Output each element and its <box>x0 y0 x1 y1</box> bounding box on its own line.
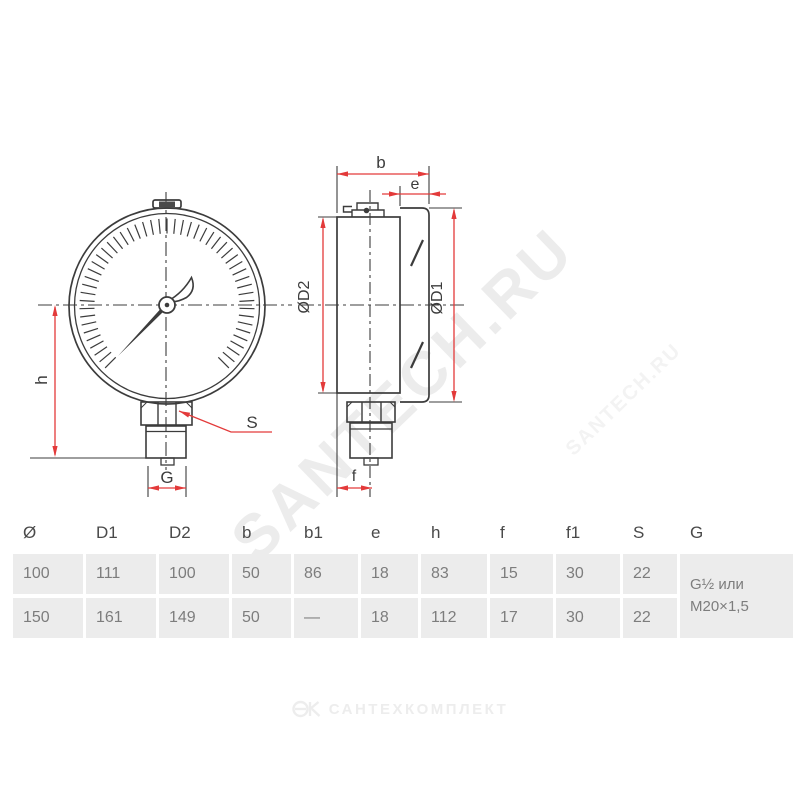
thread-value-line1: G½ или <box>690 576 744 593</box>
hex-nut-faces <box>158 402 176 425</box>
page: SANTECH.RU SANTECH.RU <box>0 0 800 800</box>
table-row: 150 161 149 50 — 18 112 17 30 22 <box>13 598 793 638</box>
table-cell: 83 <box>421 554 487 594</box>
needle-hub-center <box>165 303 170 308</box>
e-arrow-right <box>429 191 440 196</box>
table-cell: 17 <box>490 598 553 638</box>
g-label: G <box>160 468 173 487</box>
h-arrow-up <box>52 305 57 316</box>
table-cell: 50 <box>232 598 291 638</box>
header-f: f <box>490 516 553 550</box>
table-cell: 30 <box>556 598 620 638</box>
header-g: G <box>680 516 793 550</box>
d2-arrow-down <box>320 382 325 393</box>
hex-nut-side-faces <box>362 402 381 422</box>
h-label: h <box>32 375 51 384</box>
f-arrow-left <box>337 485 348 490</box>
s-leader-line <box>179 411 272 432</box>
header-f1: f1 <box>556 516 620 550</box>
hex-nut-side <box>347 402 395 422</box>
side-dimensions <box>320 171 456 490</box>
table-cell: 111 <box>86 554 156 594</box>
header-d2: D2 <box>159 516 229 550</box>
g-arrow-right <box>175 485 186 490</box>
s-label: S <box>246 413 257 432</box>
thread-tip-front <box>161 458 174 465</box>
e-label: e <box>411 176 420 193</box>
header-h: h <box>421 516 487 550</box>
relief-tab-inner <box>159 202 175 208</box>
table-cell: 18 <box>361 554 418 594</box>
header-diameter: Ø <box>13 516 83 550</box>
table-cell: 161 <box>86 598 156 638</box>
gauge-technical-drawing: h G S b e f ØD2 ØD1 <box>0 0 800 560</box>
table-cell: 100 <box>13 554 83 594</box>
front-view <box>30 192 292 497</box>
glass-reflection <box>411 240 423 368</box>
e-arrow-left <box>389 191 400 196</box>
d2-label: ØD2 <box>296 280 313 313</box>
table-cell: 149 <box>159 598 229 638</box>
table-cell: 150 <box>13 598 83 638</box>
table-cell: 30 <box>556 554 620 594</box>
d1-arrow-up <box>451 208 456 219</box>
f-label: f <box>352 468 357 485</box>
side-view <box>300 166 465 497</box>
table-cell: 100 <box>159 554 229 594</box>
g-arrow-left <box>148 485 159 490</box>
thread-tip-side <box>364 458 378 465</box>
header-b: b <box>232 516 291 550</box>
dimensions-table: Ø D1 D2 b b1 e h f f1 S G 100 111 100 50… <box>10 512 796 642</box>
b-label: b <box>376 153 385 172</box>
table-cell: 18 <box>361 598 418 638</box>
table-cell-thread: G½ или M20×1,5 <box>680 554 793 638</box>
header-b1: b1 <box>294 516 358 550</box>
table-cell: 22 <box>623 554 677 594</box>
brand-name: САНТЕХКОМПЛЕКТ <box>329 701 509 718</box>
relief-valve-lever <box>344 207 353 213</box>
table-cell: 86 <box>294 554 358 594</box>
brand-logo-icon <box>292 700 322 718</box>
thread-value-line2: M20×1,5 <box>690 598 749 615</box>
h-arrow-down <box>52 446 57 457</box>
footer-brand: САНТЕХКОМПЛЕКТ <box>0 700 800 718</box>
dial-ticks <box>80 219 255 368</box>
b-arrow-left <box>337 171 348 176</box>
header-d1: D1 <box>86 516 156 550</box>
header-e: e <box>361 516 418 550</box>
relief-valve-pin <box>364 208 370 214</box>
table-cell: — <box>294 598 358 638</box>
d1-label: ØD1 <box>429 281 446 314</box>
connector-side <box>350 423 392 458</box>
table-cell: 50 <box>232 554 291 594</box>
dimension-labels: h G S b e f ØD2 ØD1 <box>32 153 446 487</box>
b-arrow-right <box>418 171 429 176</box>
s-leader-arrow <box>179 411 190 418</box>
header-s: S <box>623 516 677 550</box>
d1-arrow-down <box>451 391 456 402</box>
d2-arrow-up <box>320 217 325 228</box>
table-header-row: Ø D1 D2 b b1 e h f f1 S G <box>13 516 793 550</box>
table-cell: 22 <box>623 598 677 638</box>
table-cell: 15 <box>490 554 553 594</box>
table-cell: 112 <box>421 598 487 638</box>
table-row: 100 111 100 50 86 18 83 15 30 22 G½ или … <box>13 554 793 594</box>
